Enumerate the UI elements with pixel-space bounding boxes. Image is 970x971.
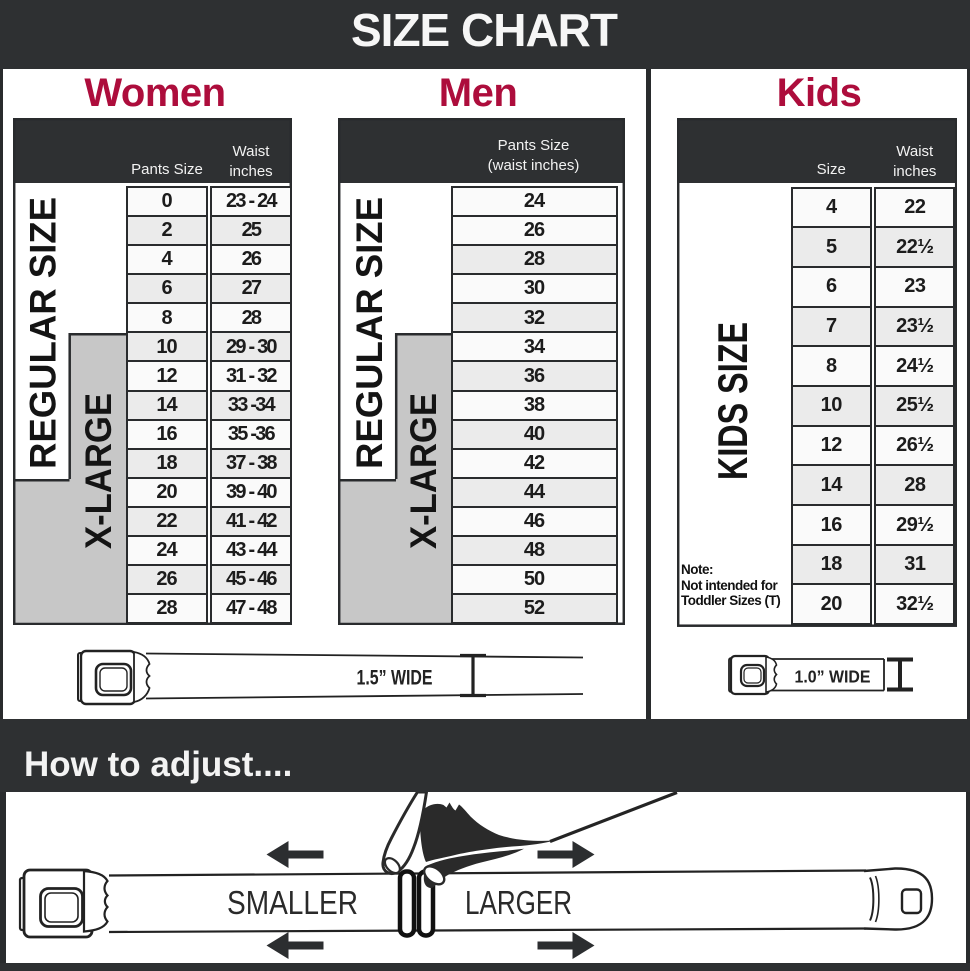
svg-text:X-LARGE: X-LARGE bbox=[403, 393, 444, 549]
svg-text:1.5” WIDE: 1.5” WIDE bbox=[357, 667, 433, 690]
svg-text:LARGER: LARGER bbox=[465, 884, 572, 921]
svg-text:REGULAR SIZE: REGULAR SIZE bbox=[23, 197, 64, 469]
svg-text:KIDS SIZE: KIDS SIZE bbox=[709, 322, 756, 480]
svg-text:X-LARGE: X-LARGE bbox=[78, 393, 119, 549]
svg-text:SMALLER: SMALLER bbox=[227, 884, 358, 921]
svg-text:1.0” WIDE: 1.0” WIDE bbox=[795, 667, 871, 687]
svg-text:REGULAR SIZE: REGULAR SIZE bbox=[349, 197, 390, 469]
